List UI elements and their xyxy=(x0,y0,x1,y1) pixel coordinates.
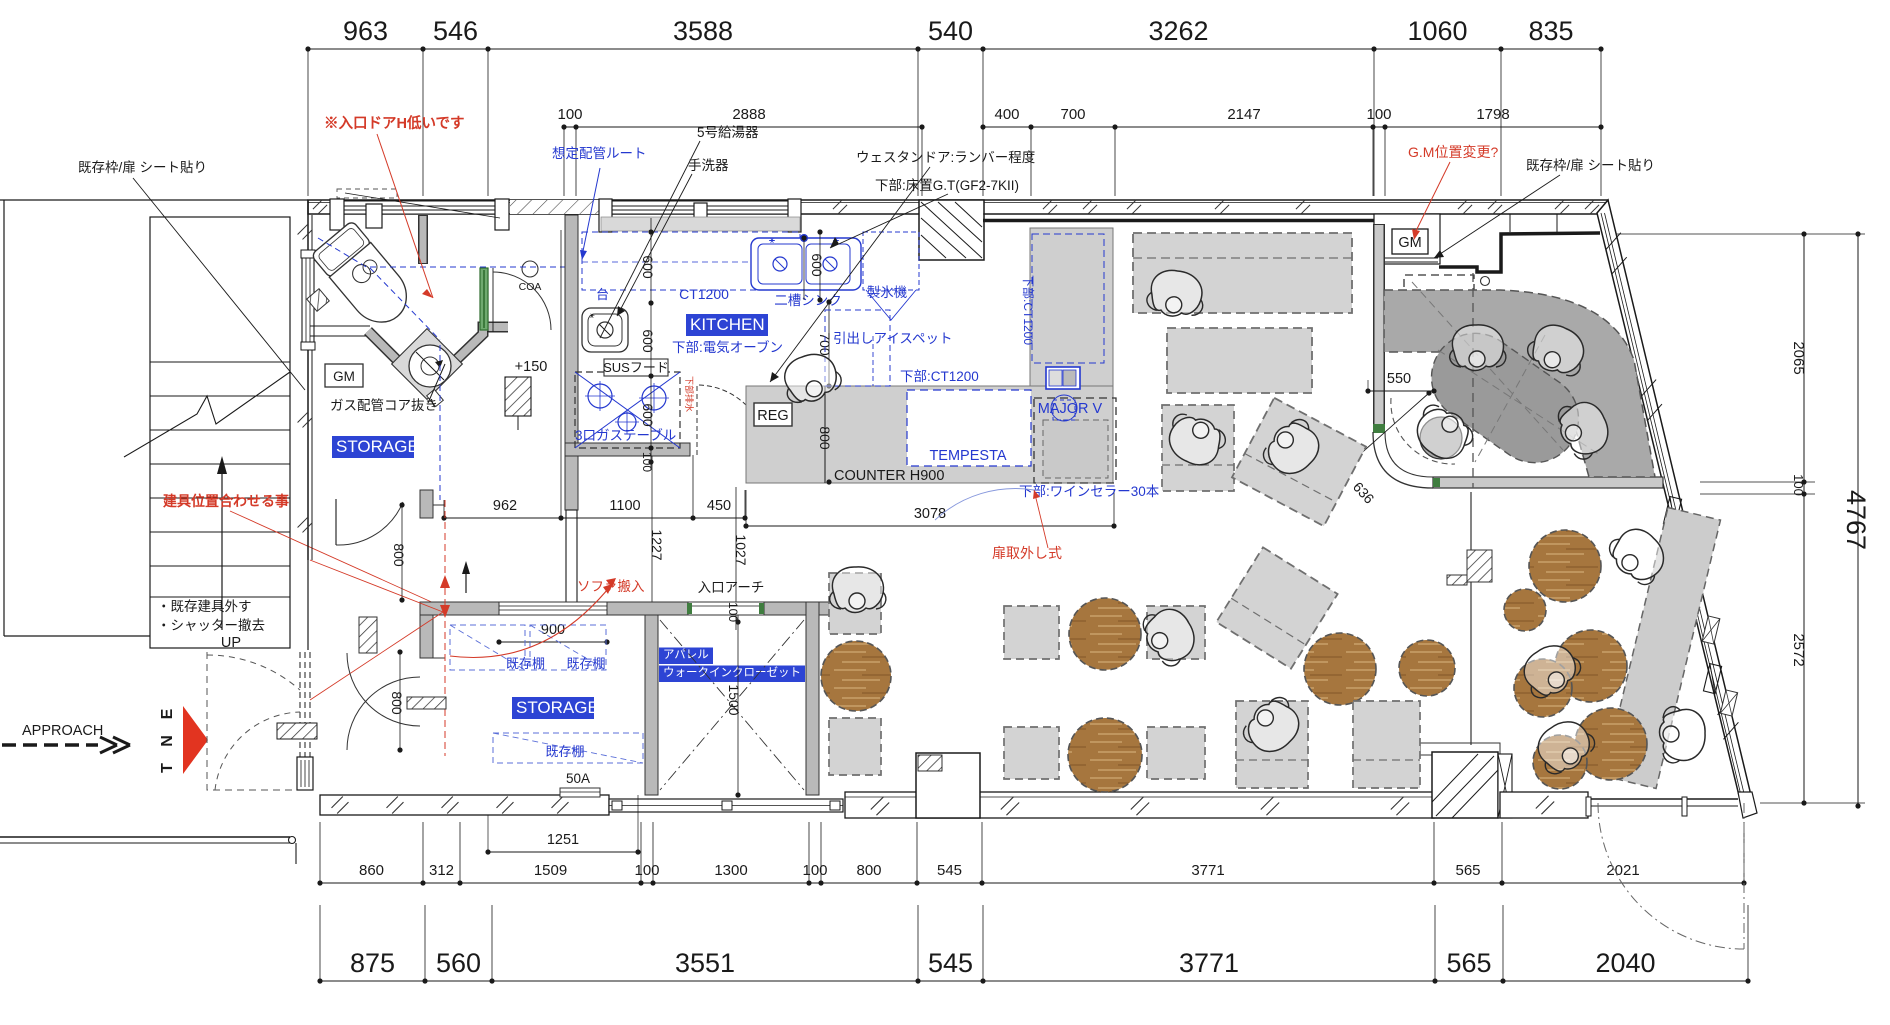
svg-text:MAJOR V: MAJOR V xyxy=(1038,401,1103,417)
svg-text:546: 546 xyxy=(433,16,478,46)
svg-text:963: 963 xyxy=(343,16,388,46)
svg-text:下部排水: 下部排水 xyxy=(684,376,695,412)
svg-text:APPROACH: APPROACH xyxy=(22,723,103,739)
svg-text:扉取外し式: 扉取外し式 xyxy=(992,545,1062,561)
svg-text:1227: 1227 xyxy=(649,529,665,560)
svg-text:1509: 1509 xyxy=(534,862,567,879)
svg-text:2888: 2888 xyxy=(732,106,765,123)
svg-text:600: 600 xyxy=(809,253,825,277)
svg-text:3口ガステーブル: 3口ガステーブル xyxy=(575,427,676,443)
svg-text:KITCHEN: KITCHEN xyxy=(690,315,765,334)
svg-text:962: 962 xyxy=(493,498,517,514)
svg-text:3262: 3262 xyxy=(1148,16,1208,46)
svg-text:N: N xyxy=(159,735,176,747)
svg-text:想定配管ルート: 想定配管ルート xyxy=(552,146,647,161)
svg-text:下部:CT1200: 下部:CT1200 xyxy=(900,369,979,384)
svg-text:545: 545 xyxy=(937,862,962,879)
svg-text:GM: GM xyxy=(1398,235,1421,251)
svg-text:875: 875 xyxy=(350,948,395,978)
svg-text:1251: 1251 xyxy=(547,832,579,848)
svg-text:800: 800 xyxy=(856,862,881,879)
svg-text:ガス配管コア抜き: ガス配管コア抜き xyxy=(330,398,438,413)
svg-text:545: 545 xyxy=(928,948,973,978)
svg-text:700: 700 xyxy=(1060,106,1085,123)
svg-text:860: 860 xyxy=(359,862,384,879)
svg-text:既存棚: 既存棚 xyxy=(506,656,545,671)
svg-text:TEMPESTA: TEMPESTA xyxy=(929,448,1006,464)
svg-text:100: 100 xyxy=(1791,474,1806,496)
svg-text:既存棚: 既存棚 xyxy=(566,656,605,671)
svg-text:⚹: ⚹ xyxy=(769,235,775,246)
svg-text:UP: UP xyxy=(221,635,241,651)
svg-text:台: 台 xyxy=(596,287,609,302)
svg-text:・シャッター撤去: ・シャッター撤去 xyxy=(157,618,265,633)
svg-text:STORAGE: STORAGE xyxy=(336,437,419,456)
svg-text:G.M位置変更?: G.M位置変更? xyxy=(1408,144,1498,160)
svg-text:312: 312 xyxy=(429,862,454,879)
svg-text:※入口ドアH低いです: ※入口ドアH低いです xyxy=(324,114,465,132)
svg-text:1798: 1798 xyxy=(1476,106,1509,123)
svg-text:835: 835 xyxy=(1528,16,1573,46)
svg-text:⚹: ⚹ xyxy=(589,310,595,320)
svg-text:1300: 1300 xyxy=(714,862,747,879)
svg-text:100: 100 xyxy=(802,862,827,879)
svg-text:1060: 1060 xyxy=(1407,16,1467,46)
svg-text:800: 800 xyxy=(389,691,405,715)
svg-text:3551: 3551 xyxy=(675,948,735,978)
svg-text:600: 600 xyxy=(640,329,656,353)
svg-text:565: 565 xyxy=(1446,948,1491,978)
svg-text:400: 400 xyxy=(994,106,1019,123)
svg-text:下部:CT1200: 下部:CT1200 xyxy=(1021,275,1036,345)
svg-text:550: 550 xyxy=(1387,371,1411,387)
svg-text:100: 100 xyxy=(557,106,582,123)
svg-text:3771: 3771 xyxy=(1179,948,1239,978)
svg-text:既存棚: 既存棚 xyxy=(545,744,584,759)
svg-text:560: 560 xyxy=(436,948,481,978)
svg-text:540: 540 xyxy=(928,16,973,46)
svg-text:565: 565 xyxy=(1455,862,1480,879)
svg-text:・既存建具外す: ・既存建具外す xyxy=(157,599,252,614)
svg-text:SUSフード: SUSフード xyxy=(603,360,669,375)
svg-text:T: T xyxy=(159,763,176,773)
svg-text:3771: 3771 xyxy=(1191,862,1224,879)
svg-text:E: E xyxy=(159,708,176,719)
svg-text:建具位置合わせる事: 建具位置合わせる事 xyxy=(163,493,289,509)
svg-text:100: 100 xyxy=(726,602,740,622)
svg-text:800: 800 xyxy=(817,426,833,450)
svg-text:900: 900 xyxy=(541,622,565,638)
svg-text:引出しアイスペット: 引出しアイスペット xyxy=(833,331,952,346)
svg-text:2040: 2040 xyxy=(1595,948,1655,978)
svg-text:1500: 1500 xyxy=(726,684,742,715)
svg-text:既存枠/扉 シート貼り: 既存枠/扉 シート貼り xyxy=(1526,158,1655,173)
svg-text:二槽シンク: 二槽シンク xyxy=(774,293,842,308)
svg-text:ウェスタンドア:ランバー程度: ウェスタンドア:ランバー程度 xyxy=(856,150,1035,165)
svg-text:4767: 4767 xyxy=(1841,490,1871,550)
svg-text:入口アーチ: 入口アーチ xyxy=(698,580,765,595)
svg-text:手洗器: 手洗器 xyxy=(688,158,729,173)
svg-text:2147: 2147 xyxy=(1227,106,1260,123)
svg-text:下部:ワインセラー30本: 下部:ワインセラー30本 xyxy=(1019,484,1160,499)
svg-text:2065: 2065 xyxy=(1790,341,1807,374)
svg-text:既存枠/扉 シート貼り: 既存枠/扉 シート貼り xyxy=(78,160,207,175)
svg-text:1100: 1100 xyxy=(609,498,640,514)
svg-text:2572: 2572 xyxy=(1790,633,1807,666)
svg-text:600: 600 xyxy=(640,403,656,427)
svg-text:CT1200: CT1200 xyxy=(679,286,729,302)
svg-text:100: 100 xyxy=(634,862,659,879)
svg-text:STORAGE: STORAGE xyxy=(516,698,599,717)
svg-text:100: 100 xyxy=(1366,106,1391,123)
svg-text:800: 800 xyxy=(391,543,407,567)
svg-text:下部:床置G.T(GF2-7KII): 下部:床置G.T(GF2-7KII) xyxy=(875,178,1019,193)
svg-text:1027: 1027 xyxy=(733,534,749,565)
svg-text:450: 450 xyxy=(707,498,731,514)
svg-text:+150: +150 xyxy=(515,359,548,375)
svg-text:3588: 3588 xyxy=(673,16,733,46)
svg-text:COA: COA xyxy=(519,281,542,293)
svg-text:50A: 50A xyxy=(566,771,590,786)
svg-text:COUNTER H900: COUNTER H900 xyxy=(834,468,944,484)
svg-text:GM: GM xyxy=(333,369,355,384)
svg-text:700: 700 xyxy=(817,332,833,356)
svg-text:下部:電気オーブン: 下部:電気オーブン xyxy=(672,339,783,355)
svg-text:REG: REG xyxy=(757,408,788,424)
svg-text:ウォークインクローゼット: ウォークインクローゼット xyxy=(663,666,801,679)
svg-text:5号給湯器: 5号給湯器 xyxy=(697,124,759,140)
